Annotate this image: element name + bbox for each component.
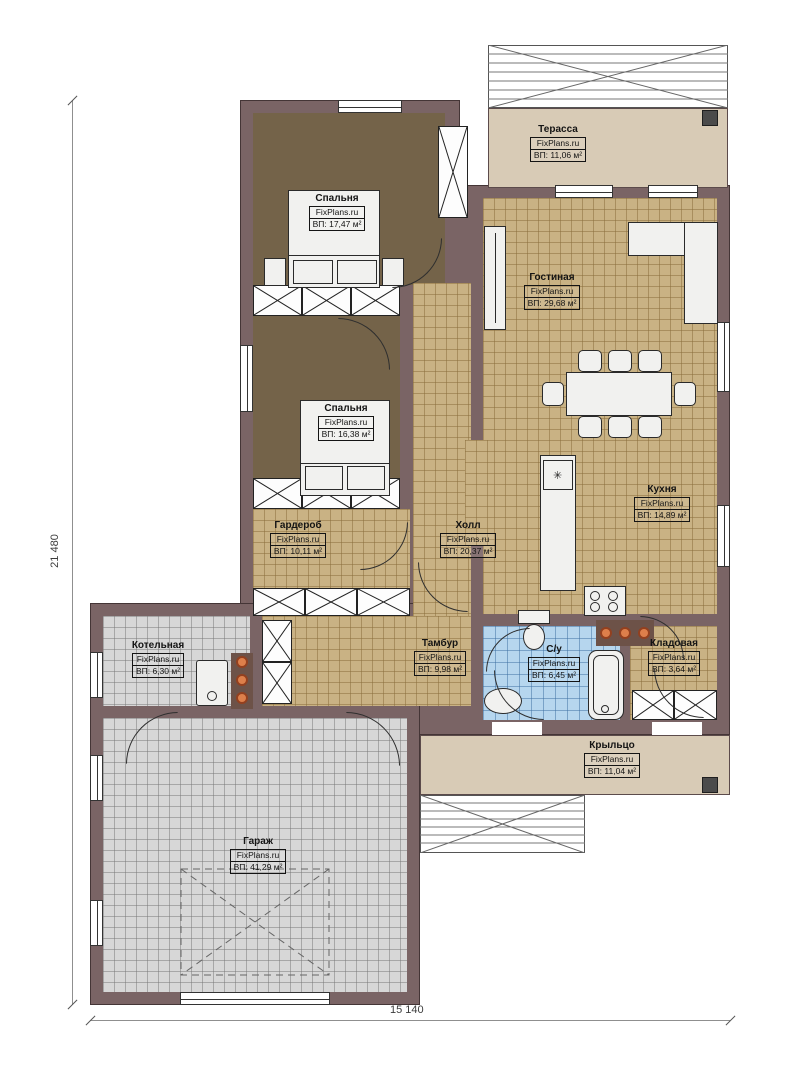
cabinet xyxy=(262,620,292,662)
chair xyxy=(638,416,662,438)
room-label-living: Гостиная FixPlans.ruВП: 29,68 м² xyxy=(506,272,598,311)
pillar xyxy=(702,110,718,126)
chair xyxy=(674,382,696,406)
dimension-label-horizontal: 15 140 xyxy=(390,1004,424,1016)
parking-marker xyxy=(180,868,330,976)
cabinet xyxy=(357,588,410,616)
room-label-vestibule: Тамбур FixPlans.ruВП: 9,98 м² xyxy=(394,638,486,677)
chair xyxy=(608,416,632,438)
room-label-boiler: Котельная FixPlans.ruВП: 6,30 м² xyxy=(112,640,204,679)
floor-plan: ✳ Терасса FixPlans.ruВП: 11,06 м² xyxy=(0,0,792,1080)
dining-table xyxy=(566,372,672,416)
pillow xyxy=(305,466,343,490)
room-label-bedroom2: Спальня FixPlans.ruВП: 16,38 м² xyxy=(300,403,392,442)
window-kitchen-right xyxy=(717,505,730,567)
kitchen-upper-unit xyxy=(684,222,718,324)
room-label-wardrobe: Гардероб FixPlans.ruВП: 10,11 м² xyxy=(252,520,344,559)
nightstand xyxy=(264,258,286,286)
pillow xyxy=(347,466,385,490)
cabinet xyxy=(305,588,357,616)
window-living-terrace-1 xyxy=(555,185,613,198)
room-label-porch: Крыльцо FixPlans.ruВП: 11,04 м² xyxy=(566,740,658,779)
chair xyxy=(608,350,632,372)
window-boiler-left xyxy=(90,652,103,698)
window-living-right xyxy=(717,322,730,392)
room-label-terrace: Терасса FixPlans.ruВП: 11,06 м² xyxy=(512,124,604,163)
room-label-kitchen: Кухня FixPlans.ruВП: 14,89 м² xyxy=(616,484,708,523)
pillow xyxy=(337,260,377,284)
terrace-stairs xyxy=(488,45,728,108)
cabinet xyxy=(253,588,305,616)
chair xyxy=(638,350,662,372)
window-bedroom1-top xyxy=(338,100,402,113)
cabinet xyxy=(262,662,292,704)
dimension-line-vertical xyxy=(72,100,73,1005)
radiator xyxy=(231,653,253,709)
kitchen-porch-door-opening xyxy=(652,722,702,735)
kitchen-sink: ✳ xyxy=(543,460,573,490)
chair xyxy=(578,350,602,372)
porch-stairs xyxy=(420,795,585,853)
pillar xyxy=(702,777,718,793)
cabinet xyxy=(302,285,351,316)
cabinet xyxy=(253,478,302,509)
toilet xyxy=(518,610,550,624)
chair xyxy=(578,416,602,438)
window-garage-left-1 xyxy=(90,755,103,801)
window-living-terrace-2 xyxy=(648,185,698,198)
entry-door-opening xyxy=(492,722,542,735)
room-label-hall: Холл FixPlans.ruВП: 20,37 м² xyxy=(422,520,514,559)
ventilation-shaft xyxy=(438,126,468,218)
room-label-pantry: Кладовая FixPlans.ruВП: 3,64 м² xyxy=(628,638,720,677)
fireplace xyxy=(484,226,506,330)
room-label-bathroom: С/у FixPlans.ruВП: 6,45 м² xyxy=(508,644,600,683)
stove xyxy=(584,586,626,616)
cabinet xyxy=(253,285,302,316)
room-label-bedroom1: Спальня FixPlans.ruВП: 17,47 м² xyxy=(291,193,383,232)
window-garage-left-2 xyxy=(90,900,103,946)
pillow xyxy=(293,260,333,284)
chair xyxy=(542,382,564,406)
dimension-line-horizontal xyxy=(90,1020,730,1021)
cabinet xyxy=(351,285,400,316)
room-label-garage: Гараж FixPlans.ruВП: 41,29 м² xyxy=(212,836,304,875)
garage-gate-opening xyxy=(180,992,330,1005)
window-bedroom2-left xyxy=(240,345,253,412)
dimension-label-vertical: 21 480 xyxy=(49,534,61,568)
